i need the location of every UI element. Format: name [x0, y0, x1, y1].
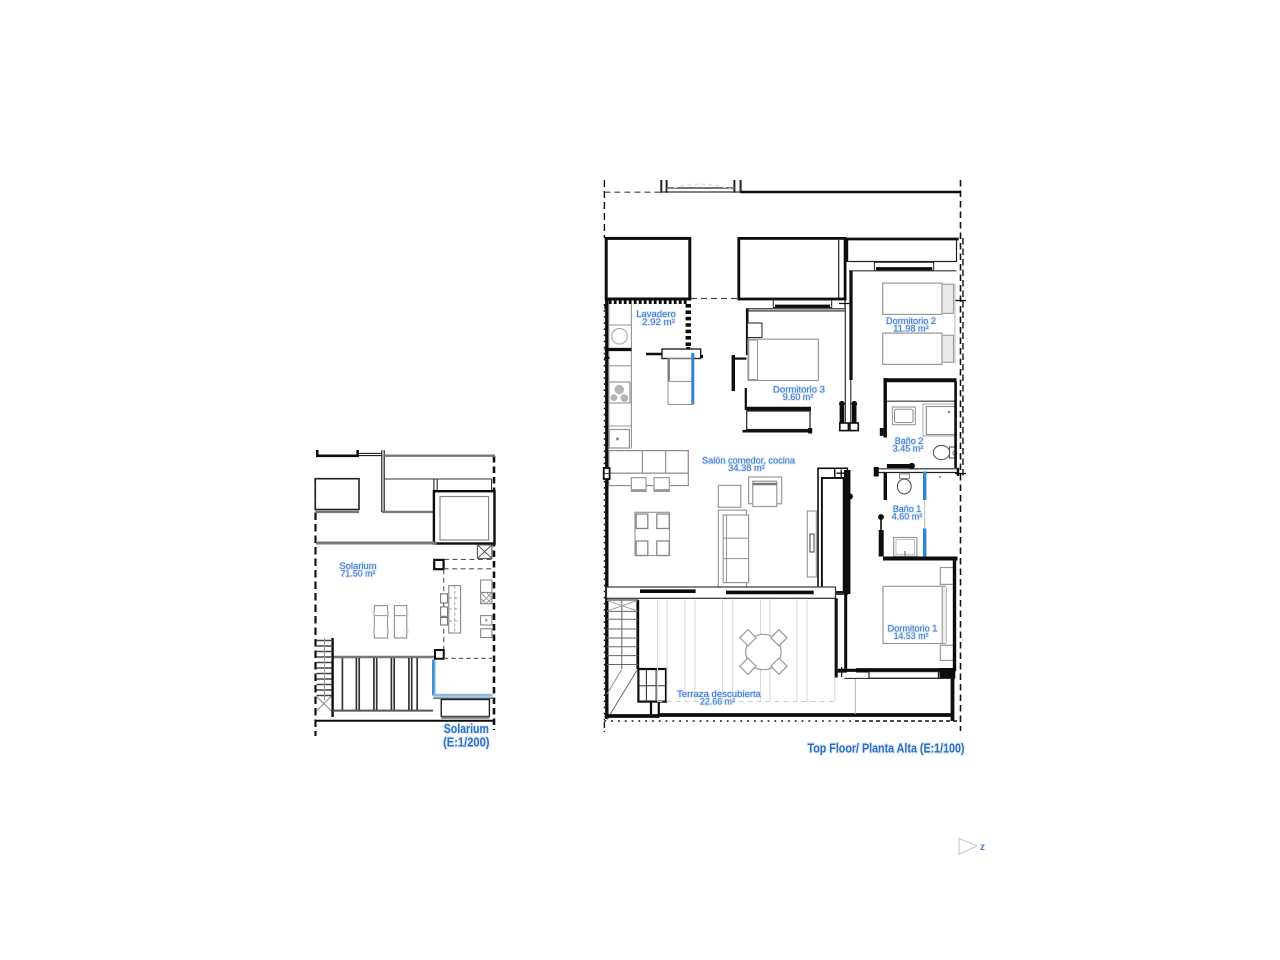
- svg-text:22.66 m²: 22.66 m²: [700, 697, 735, 707]
- svg-text:11.98 m²: 11.98 m²: [893, 323, 928, 333]
- svg-text:2.92 m²: 2.92 m²: [642, 317, 675, 327]
- svg-text:4.60 m²: 4.60 m²: [892, 511, 923, 521]
- svg-text:Top Floor/ Planta Alta (E:1/10: Top Floor/ Planta Alta (E:1/100): [808, 741, 965, 756]
- svg-text:(E:1/200): (E:1/200): [443, 735, 489, 750]
- svg-text:3.45 m²: 3.45 m²: [893, 443, 924, 453]
- svg-text:14.53 m²: 14.53 m²: [894, 631, 929, 641]
- svg-text:z: z: [980, 842, 985, 853]
- svg-text:Solarium: Solarium: [444, 721, 489, 736]
- svg-text:71.50 m²: 71.50 m²: [341, 569, 376, 579]
- svg-text:34.38 m²: 34.38 m²: [728, 463, 765, 473]
- svg-text:9.60 m²: 9.60 m²: [783, 392, 814, 402]
